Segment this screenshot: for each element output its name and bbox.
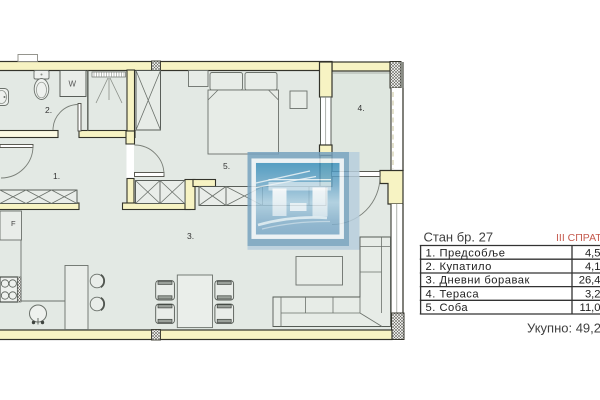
- svg-text:Укупно: 49,2: Укупно: 49,2: [527, 321, 600, 336]
- svg-text:4.: 4.: [358, 103, 365, 113]
- svg-text:5.: 5.: [223, 161, 230, 171]
- svg-text:III СПРАТ: III СПРАТ: [556, 232, 600, 244]
- svg-text:2. Купатило: 2. Купатило: [426, 261, 492, 273]
- svg-text:3. Дневни боравак: 3. Дневни боравак: [426, 275, 530, 287]
- svg-text:3,2: 3,2: [585, 288, 600, 300]
- svg-text:1.: 1.: [53, 171, 60, 181]
- svg-text:5. Соба: 5. Соба: [426, 302, 469, 314]
- svg-text:11,0: 11,0: [580, 302, 600, 314]
- svg-text:Стан бр. 27: Стан бр. 27: [424, 230, 494, 245]
- svg-text:3.: 3.: [187, 231, 194, 241]
- svg-text:4,1: 4,1: [585, 261, 600, 273]
- svg-text:2.: 2.: [45, 105, 52, 115]
- svg-text:4,5: 4,5: [585, 247, 600, 259]
- svg-text:F: F: [11, 219, 16, 228]
- svg-text:1. Предсобље: 1. Предсобље: [426, 247, 506, 259]
- svg-text:26,4: 26,4: [579, 275, 600, 287]
- svg-text:W: W: [69, 80, 77, 89]
- svg-text:4. Тераса: 4. Тераса: [426, 288, 480, 300]
